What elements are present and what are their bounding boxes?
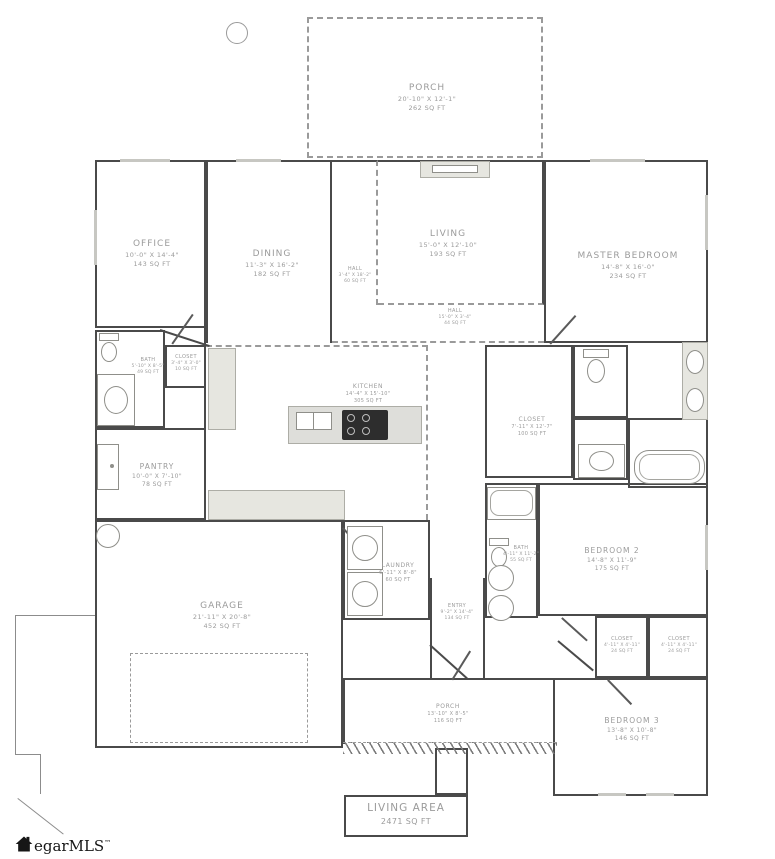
- property-line: [40, 754, 41, 794]
- room-name: BEDROOM 3: [567, 716, 697, 727]
- pantry-label: PANTRY 10'-0" X 7'-10" 78 SQ FT: [107, 462, 207, 489]
- bath-center-label: BATH 4'-11" X 11'-2" 55 SQ FT: [497, 545, 545, 565]
- room-name: ENTRY: [427, 603, 487, 610]
- fireplace-firebox: [432, 165, 478, 173]
- property-line: [15, 615, 95, 616]
- room-area: 182 SQ FT: [212, 270, 332, 279]
- room-dims: 10'-0" X 7'-10": [107, 473, 207, 481]
- toilet-bowl-icon: [101, 342, 117, 362]
- room-dims: 14'-8" X 16'-0": [548, 263, 708, 272]
- bathtub-inner: [490, 490, 533, 516]
- porch-top-label: PORCH 20'-10" X 12'-1" 262 SQ FT: [347, 82, 507, 113]
- wall-segment: [204, 388, 206, 430]
- bath-left-label: BATH 5'-10" X 8'-5" 49 SQ FT: [126, 357, 170, 377]
- room-name: CLOSET: [651, 636, 707, 643]
- room-name: DINING: [212, 248, 332, 261]
- room-name: HALL: [405, 308, 505, 315]
- room-name: MASTER BEDROOM: [548, 250, 708, 263]
- master-closet-walls: [485, 345, 573, 478]
- site-circle-marker: [226, 22, 248, 44]
- trademark-symbol: ™: [104, 839, 111, 847]
- room-dims: 14'-4" X 15'-10": [328, 391, 408, 398]
- toilet-tank-icon: [99, 333, 119, 341]
- room-dims: 7'-11" X 12'-7": [492, 424, 572, 431]
- total-area-value: 2471 SQ FT: [346, 816, 466, 827]
- room-area: 262 SQ FT: [347, 104, 507, 113]
- dining-label: DINING 11'-3" X 16'-2" 182 SQ FT: [212, 248, 332, 279]
- sink-icon: [104, 386, 128, 414]
- diagonal-wall: [557, 640, 594, 671]
- room-area: 452 SQ FT: [152, 622, 292, 631]
- room-name: BATH: [497, 545, 545, 552]
- closet-b2b-label: CLOSET 4'-11" X 4'-11" 24 SQ FT: [651, 636, 707, 656]
- room-area: 10 SQ FT: [165, 367, 207, 373]
- room-dims: 13'-10" X 8'-5": [388, 711, 508, 718]
- garage-door-outline: [130, 653, 308, 743]
- sink-icon: [589, 451, 614, 471]
- room-name: GARAGE: [152, 600, 292, 613]
- washer-drum-icon: [352, 535, 378, 561]
- sink-icon: [686, 350, 704, 374]
- logo-text: egarMLS™: [34, 839, 111, 854]
- living-label: LIVING 15'-0" X 12'-10" 193 SQ FT: [388, 228, 508, 259]
- master-bedroom-label: MASTER BEDROOM 14'-8" X 16'-0" 234 SQ FT: [548, 250, 708, 281]
- burner-icon: [347, 414, 355, 422]
- living-area-label: LIVING AREA 2471 SQ FT: [346, 801, 466, 827]
- entry-label: ENTRY 9'-2" X 14'-4" 134 SQ FT: [427, 603, 487, 623]
- room-area: 100 SQ FT: [492, 431, 572, 438]
- room-area: 234 SQ FT: [548, 272, 708, 281]
- room-name: PORCH: [388, 703, 508, 711]
- bathtub-inner: [639, 454, 700, 480]
- house-icon: [14, 834, 34, 854]
- room-area: 134 SQ FT: [427, 616, 487, 622]
- window: [705, 525, 708, 570]
- room-area: 24 SQ FT: [651, 649, 707, 655]
- room-name: PORCH: [347, 82, 507, 95]
- room-area: 49 SQ FT: [126, 370, 170, 376]
- room-name: KITCHEN: [328, 383, 408, 391]
- kitchen-counter: [208, 490, 345, 520]
- room-area: 116 SQ FT: [388, 718, 508, 725]
- sink-icon: [488, 595, 514, 621]
- room-dims: 13'-8" X 10'-8": [567, 727, 697, 735]
- room-dims: 10'-0" X 14'-4": [92, 251, 212, 260]
- closet-b2a-label: CLOSET 4'-11" X 4'-11" 24 SQ FT: [596, 636, 648, 656]
- room-area: 60 SQ FT: [363, 577, 433, 584]
- room-name: LAUNDRY: [363, 562, 433, 570]
- bedroom2-label: BEDROOM 2 14'-8" X 11'-9" 175 SQ FT: [547, 546, 677, 573]
- room-area: 44 SQ FT: [405, 321, 505, 327]
- room-area: 143 SQ FT: [92, 260, 212, 269]
- room-area: 175 SQ FT: [547, 565, 677, 573]
- kitchen-sink-icon: [296, 412, 332, 430]
- burner-icon: [347, 427, 355, 435]
- room-dims: 21'-11" X 20'-8": [152, 613, 292, 622]
- room-name: HALL: [330, 266, 380, 273]
- room-area: 78 SQ FT: [107, 481, 207, 489]
- room-dims: 11'-3" X 16'-2": [212, 261, 332, 270]
- mls-logo: egarMLS™: [14, 834, 111, 854]
- window: [646, 793, 674, 796]
- window: [120, 159, 170, 162]
- laundry-label: LAUNDRY 6'-11" X 8'-8" 60 SQ FT: [363, 562, 433, 584]
- room-name: PANTRY: [107, 462, 207, 473]
- room-name: OFFICE: [92, 238, 212, 251]
- room-area: 193 SQ FT: [388, 250, 508, 259]
- office-label: OFFICE 10'-0" X 14'-4" 143 SQ FT: [92, 238, 212, 269]
- room-dims: 15'-0" X 12'-10": [388, 241, 508, 250]
- room-name: BATH: [126, 357, 170, 364]
- master-closet-label: CLOSET 7'-11" X 12'-7" 100 SQ FT: [492, 416, 572, 438]
- room-area: 305 SQ FT: [328, 398, 408, 405]
- window: [705, 195, 708, 250]
- porch-bottom-label: PORCH 13'-10" X 8'-5" 116 SQ FT: [388, 703, 508, 725]
- water-heater-icon: [96, 524, 120, 548]
- window: [590, 159, 645, 162]
- room-name: LIVING: [388, 228, 508, 241]
- step-outline: [435, 748, 468, 795]
- room-name: BEDROOM 2: [547, 546, 677, 557]
- floor-plan: PORCH 20'-10" X 12'-1" 262 SQ FT OFFICE …: [0, 0, 775, 859]
- burner-icon: [362, 414, 370, 422]
- bedroom3-label: BEDROOM 3 13'-8" X 10'-8" 146 SQ FT: [567, 716, 697, 743]
- logo-word: egarMLS: [34, 837, 104, 855]
- room-area: 55 SQ FT: [497, 558, 545, 564]
- total-area-name: LIVING AREA: [346, 801, 466, 816]
- property-line: [15, 754, 41, 755]
- room-area: 146 SQ FT: [567, 735, 697, 743]
- window: [236, 159, 281, 162]
- room-area: 24 SQ FT: [596, 649, 648, 655]
- property-line: [17, 798, 63, 834]
- property-line: [15, 615, 16, 755]
- window: [598, 793, 626, 796]
- hall-h-label: HALL 15'-0" X 3'-4" 44 SQ FT: [405, 308, 505, 328]
- room-name: CLOSET: [596, 636, 648, 643]
- room-name: CLOSET: [492, 416, 572, 424]
- toilet-tank-icon: [583, 349, 609, 358]
- room-dims: 14'-8" X 11'-9": [547, 557, 677, 565]
- hall-v-label: HALL 3'-4" X 18'-2" 60 SQ FT: [330, 266, 380, 286]
- porch-step-hatch: [343, 742, 557, 754]
- room-dims: 6'-11" X 8'-8": [363, 570, 433, 577]
- sink-icon: [686, 388, 704, 412]
- entry-walls: [430, 578, 485, 680]
- burner-icon: [362, 427, 370, 435]
- bedroom2-door: [561, 617, 587, 641]
- room-name: CLOSET: [165, 354, 207, 361]
- sink-divider: [313, 412, 314, 430]
- room-dims: 20'-10" X 12'-1": [347, 95, 507, 104]
- kitchen-label: KITCHEN 14'-4" X 15'-10" 305 SQ FT: [328, 383, 408, 405]
- garage-label: GARAGE 21'-11" X 20'-8" 452 SQ FT: [152, 600, 292, 631]
- room-area: 60 SQ FT: [330, 279, 380, 285]
- sink-icon: [488, 565, 514, 591]
- toilet-bowl-icon: [587, 359, 605, 383]
- closet-small-label: CLOSET 3'-4" X 3'-0" 10 SQ FT: [165, 354, 207, 374]
- kitchen-counter: [208, 348, 236, 430]
- dryer-drum-icon: [352, 581, 378, 607]
